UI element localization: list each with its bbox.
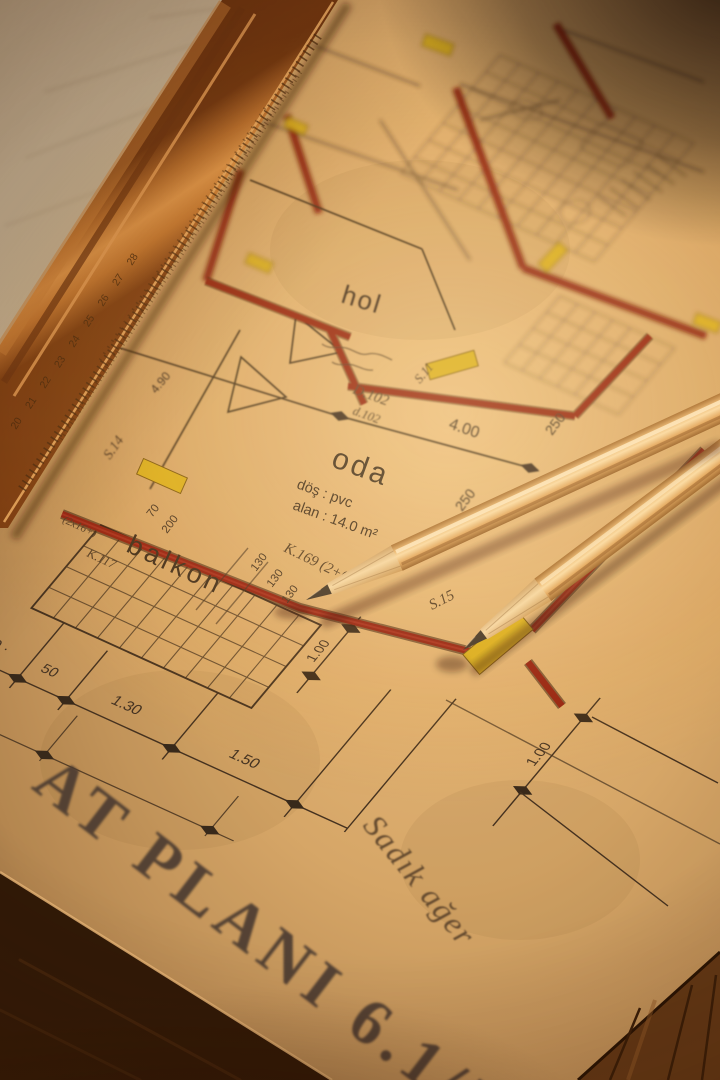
photo-floor-plan-scene: hol D.102 d.102 4.00 250 250 S.11 4.90 S… — [0, 0, 720, 1080]
floor-plan-photo-svg: hol D.102 d.102 4.00 250 250 S.11 4.90 S… — [0, 0, 720, 1080]
